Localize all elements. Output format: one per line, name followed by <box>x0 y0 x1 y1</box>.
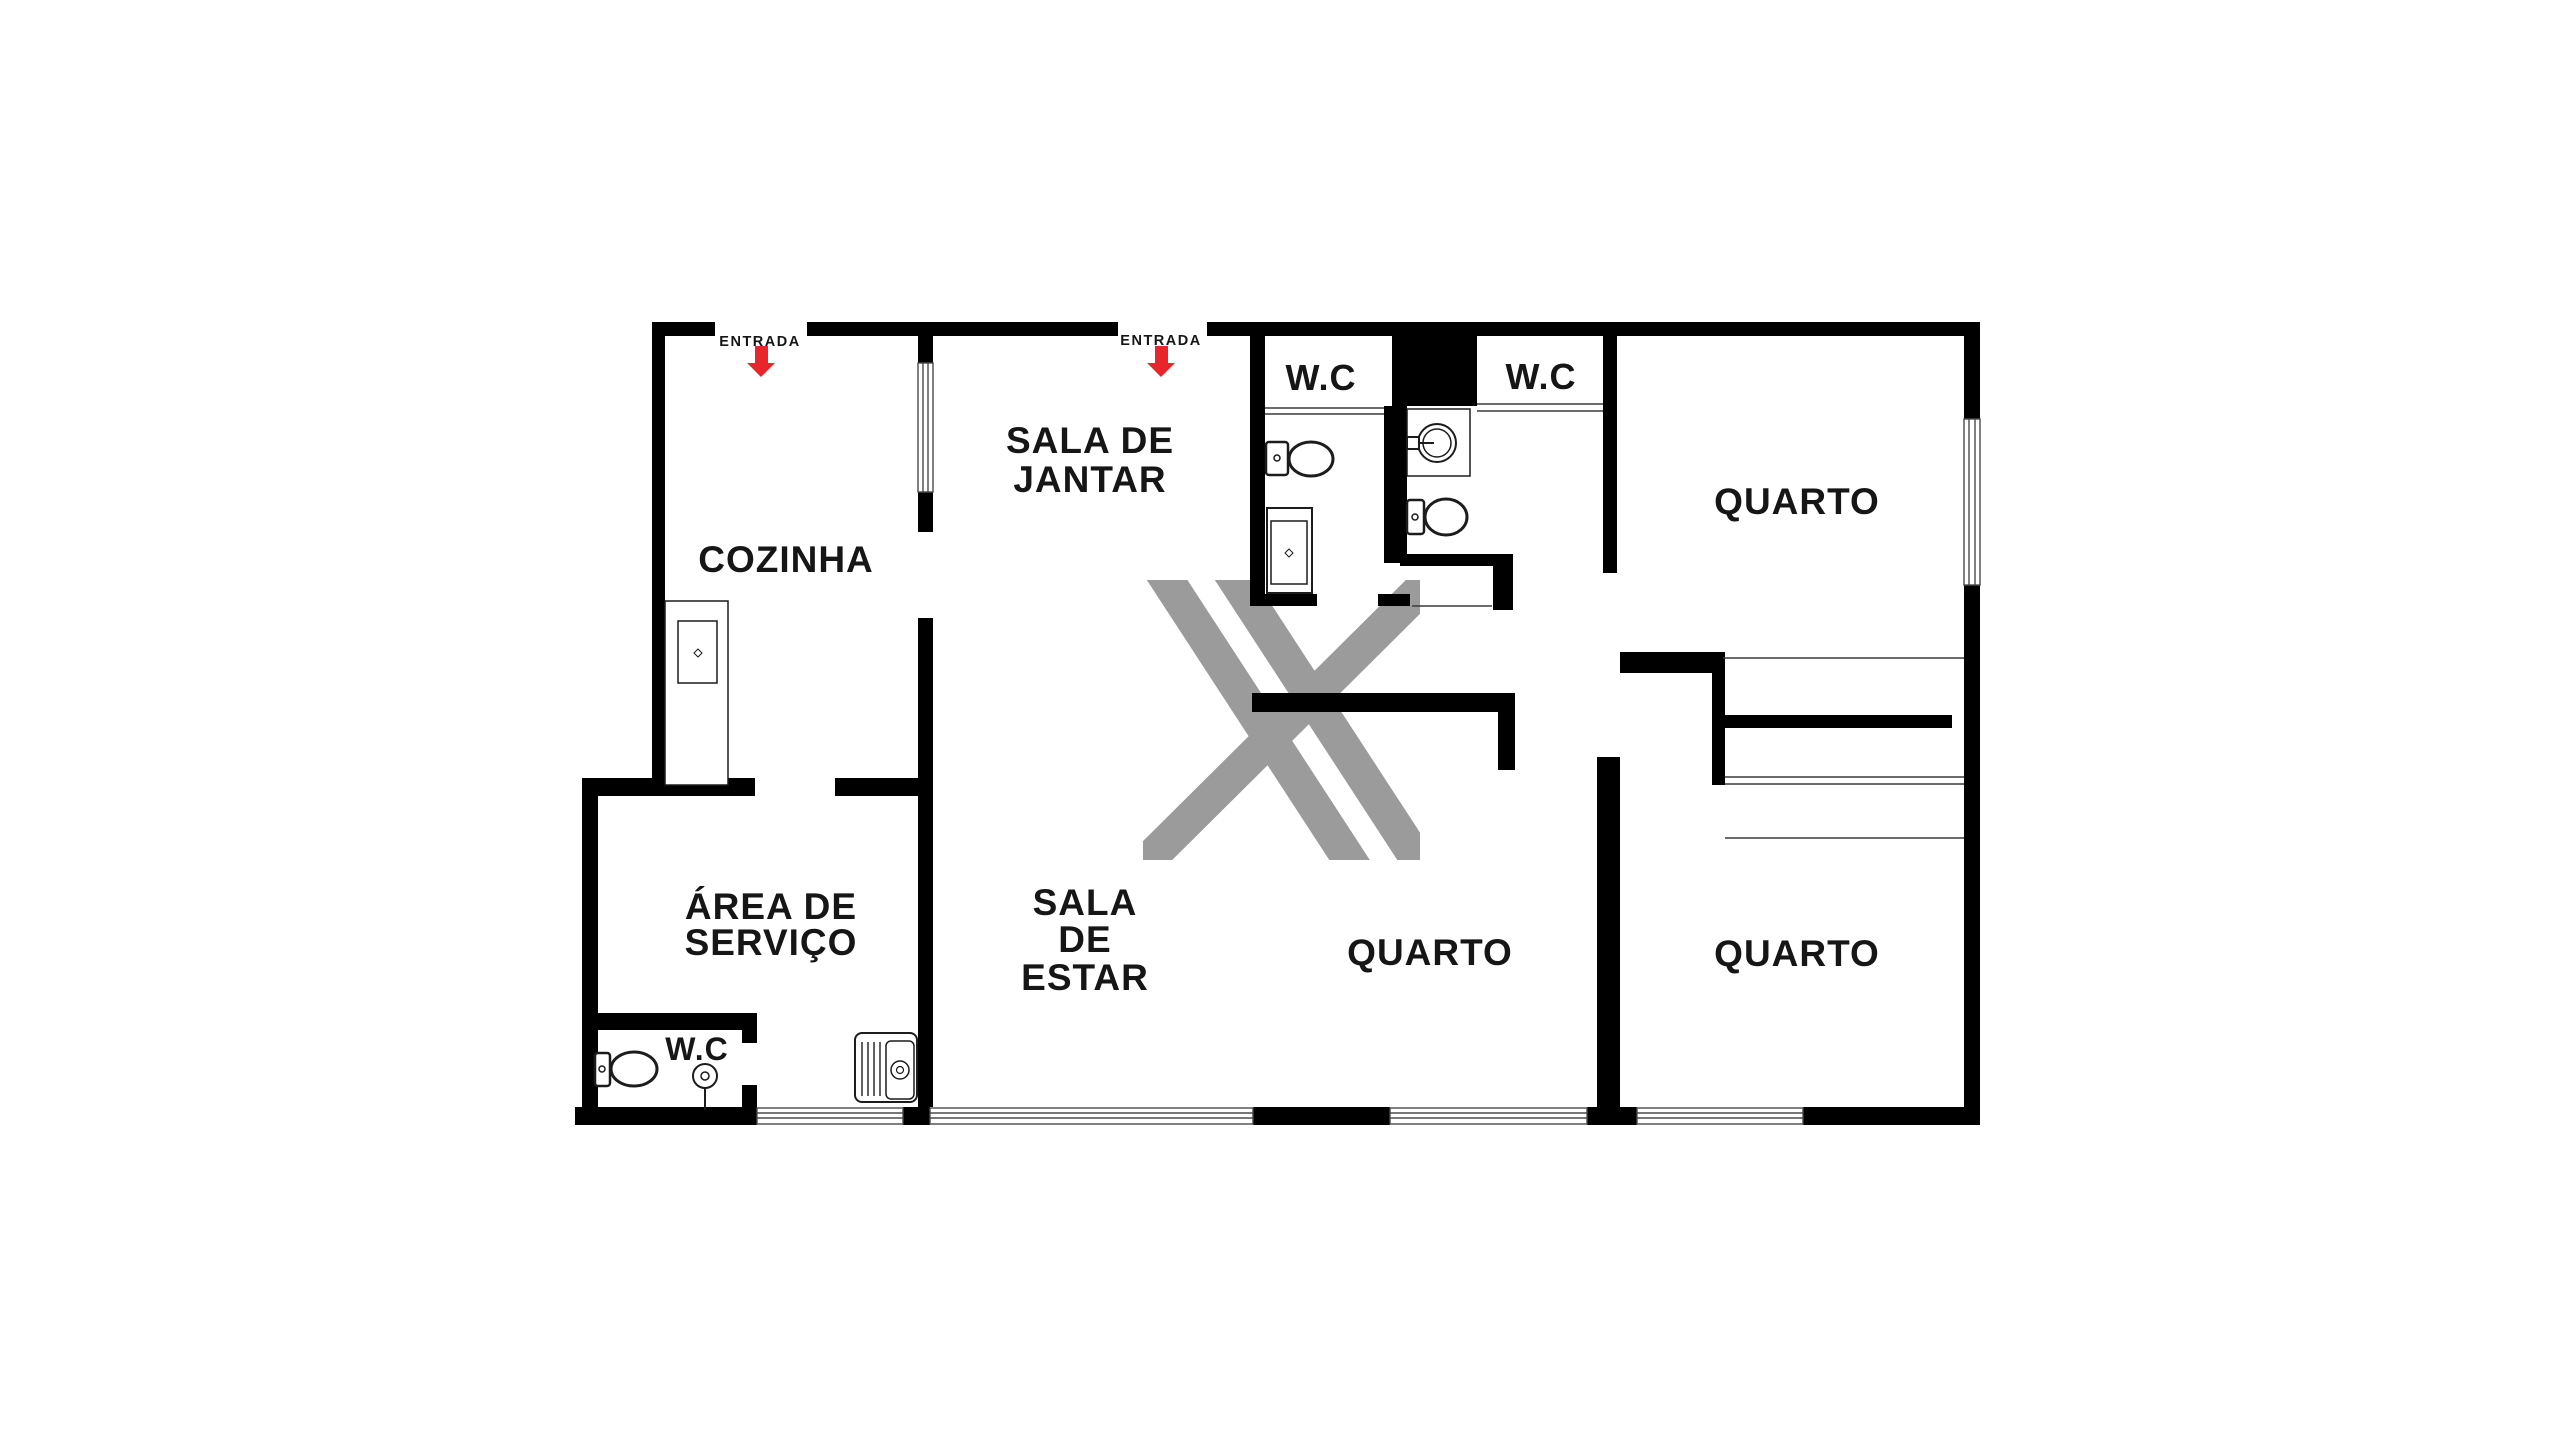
wall-wc1-jamb <box>1378 594 1410 606</box>
room-label-wc-servico: W.C <box>665 1031 728 1067</box>
room-label-sala-estar-2: DE <box>1058 919 1111 960</box>
room-label-sala-estar-3: ESTAR <box>1021 957 1149 998</box>
shaft-solid <box>1392 329 1477 406</box>
wall-bottom-4 <box>1803 1107 1980 1125</box>
toilet-icon-wc3 <box>595 1052 657 1086</box>
wall-cozinha-left <box>652 322 665 778</box>
entrada-label-cozinha: ENTRADA <box>719 334 800 350</box>
room-label-sala-jantar-1: SALA DE <box>1006 420 1174 461</box>
window-bottom-quarto-right <box>1637 1108 1803 1124</box>
room-label-wc-left: W.C <box>1286 357 1357 398</box>
room-label-wc-right: W.C <box>1506 356 1577 397</box>
x-watermark <box>1136 566 1432 876</box>
round-sink-icon-wc2 <box>1407 409 1470 476</box>
toilet-icon-wc2 <box>1407 499 1467 535</box>
vanity-icon-wc1 <box>1267 508 1312 593</box>
wall-wc3-jamb-upper <box>742 1013 757 1043</box>
wall-spine-low <box>918 618 933 1107</box>
wall-closet-top <box>1400 554 1513 566</box>
entrance-arrow-down-icon-jantar <box>1147 346 1175 377</box>
wall-bottom-2 <box>1253 1107 1390 1125</box>
entrance-arrow-down-icon-cozinha <box>747 346 775 377</box>
wall-wc3-top <box>588 1013 757 1030</box>
wall-right-lower <box>1964 585 1980 1125</box>
wall-spine-top <box>918 322 933 363</box>
wall-corridor-leg <box>1498 712 1515 770</box>
window-bottom-area <box>757 1108 903 1124</box>
wall-corridor <box>1252 693 1515 712</box>
wall-closet-leg <box>1493 566 1513 610</box>
floorplan-page: ENTRADA ENTRADA COZINHA SALA DE JANTAR W… <box>0 0 2560 1440</box>
wall-top-2 <box>807 322 1118 336</box>
wall-spine-foot <box>903 1107 930 1125</box>
room-label-quarto-mid: QUARTO <box>1347 932 1513 973</box>
wall-quarto-jog <box>1620 652 1725 673</box>
wall-quartos-divider <box>1597 757 1620 1107</box>
wall-spine-mid <box>918 492 933 532</box>
wall-quartos-h <box>1712 715 1952 728</box>
window-right-wall <box>1964 419 1980 585</box>
room-label-area-2: SERVIÇO <box>685 922 858 963</box>
wall-jantar-right <box>1250 322 1265 603</box>
kitchen-sink-icon <box>855 1033 917 1102</box>
shower-icon-wc3 <box>693 1064 717 1110</box>
floorplan-svg: ENTRADA ENTRADA COZINHA SALA DE JANTAR W… <box>0 0 2560 1440</box>
room-label-cozinha: COZINHA <box>698 539 874 580</box>
window-spine-panel <box>918 363 933 492</box>
entrada-label-jantar: ENTRADA <box>1120 333 1201 349</box>
room-label-quarto-right: QUARTO <box>1714 933 1880 974</box>
wall-bottom-3 <box>1587 1107 1637 1125</box>
stove-icon-cozinha <box>665 601 728 785</box>
wall-wc2-right <box>1603 329 1617 573</box>
room-label-area-1: ÁREA DE <box>685 886 857 927</box>
windows <box>757 363 1980 1124</box>
wall-wc1-bottom <box>1250 594 1317 606</box>
toilet-icon-wc1 <box>1266 442 1333 476</box>
window-bottom-sala-estar <box>930 1108 1253 1124</box>
wall-wc-divider <box>1384 406 1407 563</box>
window-bottom-quarto-mid <box>1390 1108 1587 1124</box>
room-label-sala-jantar-2: JANTAR <box>1013 459 1166 500</box>
room-label-quarto-top: QUARTO <box>1714 481 1880 522</box>
wall-bottom-1 <box>575 1107 757 1125</box>
wall-right-upper <box>1964 322 1980 419</box>
wall-top-3 <box>1207 322 1980 336</box>
room-label-sala-estar-1: SALA <box>1033 882 1138 923</box>
